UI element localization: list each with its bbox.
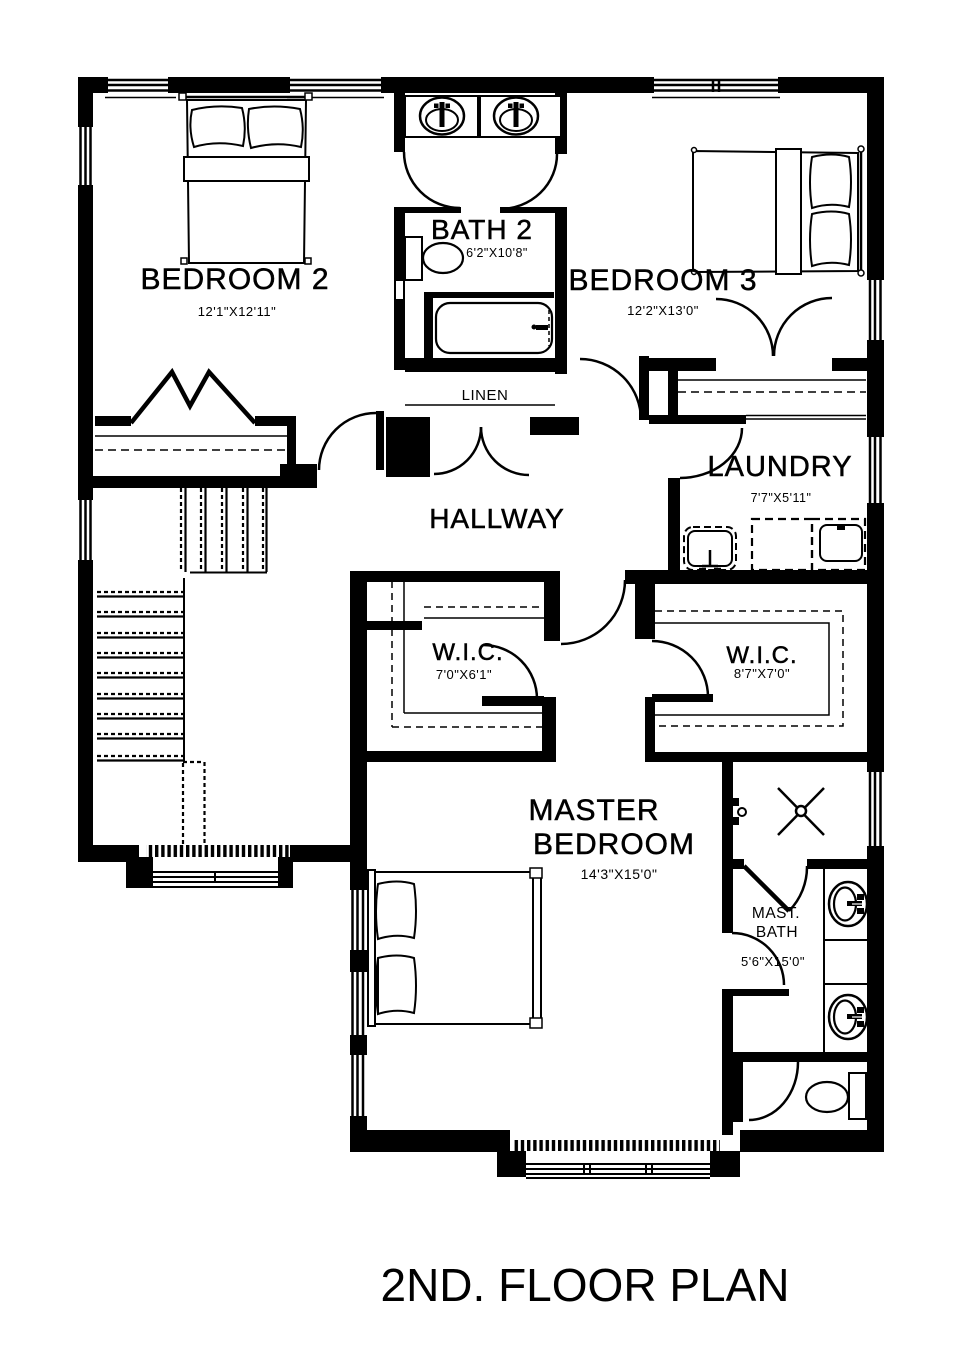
svg-text:LAUNDRY: LAUNDRY <box>707 451 852 483</box>
svg-text:BEDROOM 2: BEDROOM 2 <box>140 263 329 296</box>
svg-text:5'6"X15'0": 5'6"X15'0" <box>741 954 805 969</box>
svg-text:8'7"X7'0": 8'7"X7'0" <box>734 666 790 681</box>
svg-text:BATH: BATH <box>756 924 798 941</box>
svg-text:MAST.: MAST. <box>752 905 800 922</box>
svg-text:12'1"X12'11": 12'1"X12'11" <box>198 304 277 319</box>
svg-text:14'3"X15'0": 14'3"X15'0" <box>581 866 658 882</box>
svg-text:W.I.C.: W.I.C. <box>432 639 503 666</box>
svg-text:7'7"X5'11": 7'7"X5'11" <box>751 491 812 505</box>
svg-text:BEDROOM 3: BEDROOM 3 <box>568 264 757 297</box>
svg-text:HALLWAY: HALLWAY <box>429 503 565 534</box>
svg-text:MASTER: MASTER <box>528 794 659 827</box>
svg-text:12'2"X13'0": 12'2"X13'0" <box>627 303 699 318</box>
svg-text:LINEN: LINEN <box>462 387 509 404</box>
svg-text:BEDROOM: BEDROOM <box>533 828 695 861</box>
svg-text:W.I.C.: W.I.C. <box>726 642 797 669</box>
svg-text:6'2"X10'8": 6'2"X10'8" <box>466 246 528 260</box>
svg-text:2ND. FLOOR PLAN: 2ND. FLOOR PLAN <box>381 1259 790 1311</box>
svg-text:7'0"X6'1": 7'0"X6'1" <box>436 667 492 682</box>
svg-text:BATH 2: BATH 2 <box>431 214 533 245</box>
